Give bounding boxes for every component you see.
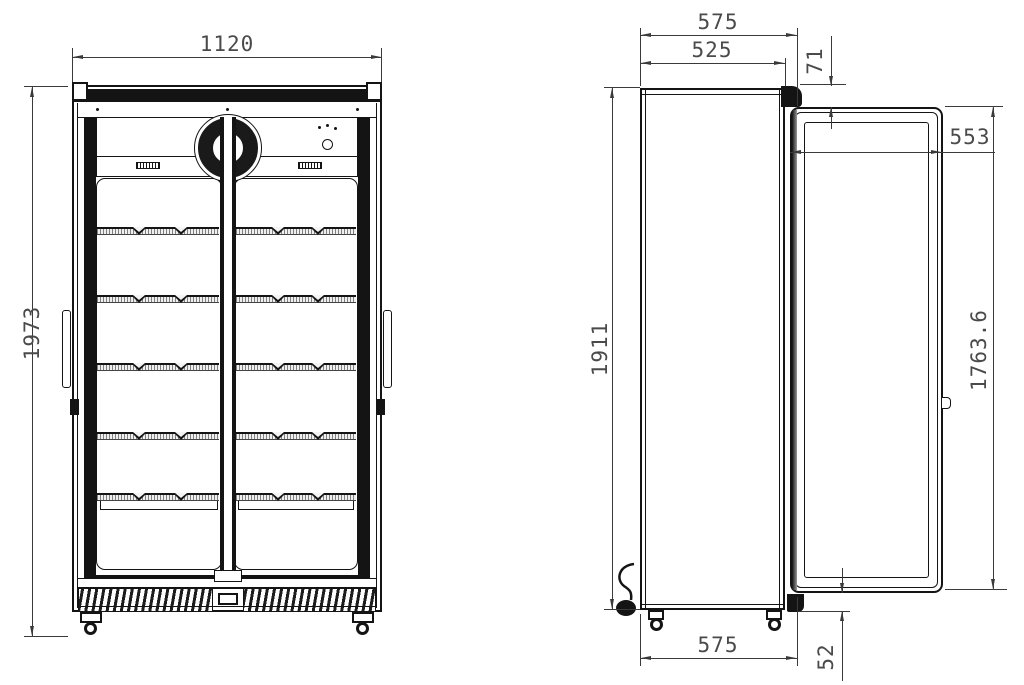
arrowhead <box>840 611 844 621</box>
frame-line <box>645 90 646 608</box>
door-glass-pane <box>804 122 929 578</box>
arrowhead <box>829 107 833 117</box>
arrowhead <box>641 33 651 37</box>
dim-door-width: 553 <box>930 126 1010 148</box>
ext-line <box>785 58 786 86</box>
frame-line <box>641 94 784 95</box>
frame-line <box>779 90 780 608</box>
caster-wheel <box>768 618 781 631</box>
arrowhead <box>791 150 801 154</box>
arrowhead <box>829 76 833 86</box>
dim-line <box>640 63 785 64</box>
arrowhead <box>774 61 784 65</box>
ext-line <box>797 597 798 666</box>
ext-line <box>945 589 1007 590</box>
dim-overall-depth: 575 <box>668 11 768 33</box>
frame-line <box>641 604 784 605</box>
side-view: 575 525 71 553 1911 1763.6 <box>0 0 1024 685</box>
dim-door-height: 1763.6 <box>968 295 990 405</box>
top-hinge <box>781 86 802 107</box>
dim-line <box>790 152 995 153</box>
arrowhead <box>610 599 614 609</box>
technical-drawing-sheet: 1120 1973 <box>0 0 1024 685</box>
arrowhead <box>931 150 941 154</box>
ext-line <box>640 28 641 86</box>
arrowhead <box>641 61 651 65</box>
cabinet-side-outline <box>640 88 785 610</box>
arrowhead <box>641 656 651 660</box>
dim-body-height: 1911 <box>589 299 611 399</box>
dim-door-bottom-clearance: 52 <box>815 637 837 677</box>
arrowhead <box>610 88 614 98</box>
arrowhead <box>991 579 995 589</box>
bottom-hinge <box>787 594 804 612</box>
arrowhead <box>786 33 796 37</box>
ext-line <box>604 609 640 610</box>
dim-line <box>640 35 797 36</box>
ext-line <box>800 84 846 85</box>
door-hinge-edge <box>792 110 797 590</box>
ext-line <box>797 28 798 106</box>
caster-wheel <box>650 618 663 631</box>
dim-door-top-offset: 71 <box>804 41 826 81</box>
dim-line <box>640 658 797 659</box>
door-handle-side <box>941 397 951 409</box>
dim-base-depth: 575 <box>668 634 768 656</box>
arrowhead <box>786 656 796 660</box>
dim-line <box>993 107 994 589</box>
dim-line <box>612 88 613 609</box>
arrowhead <box>991 107 995 117</box>
dim-body-depth: 525 <box>662 39 762 61</box>
dim-line <box>842 611 843 681</box>
arrowhead <box>840 583 844 593</box>
